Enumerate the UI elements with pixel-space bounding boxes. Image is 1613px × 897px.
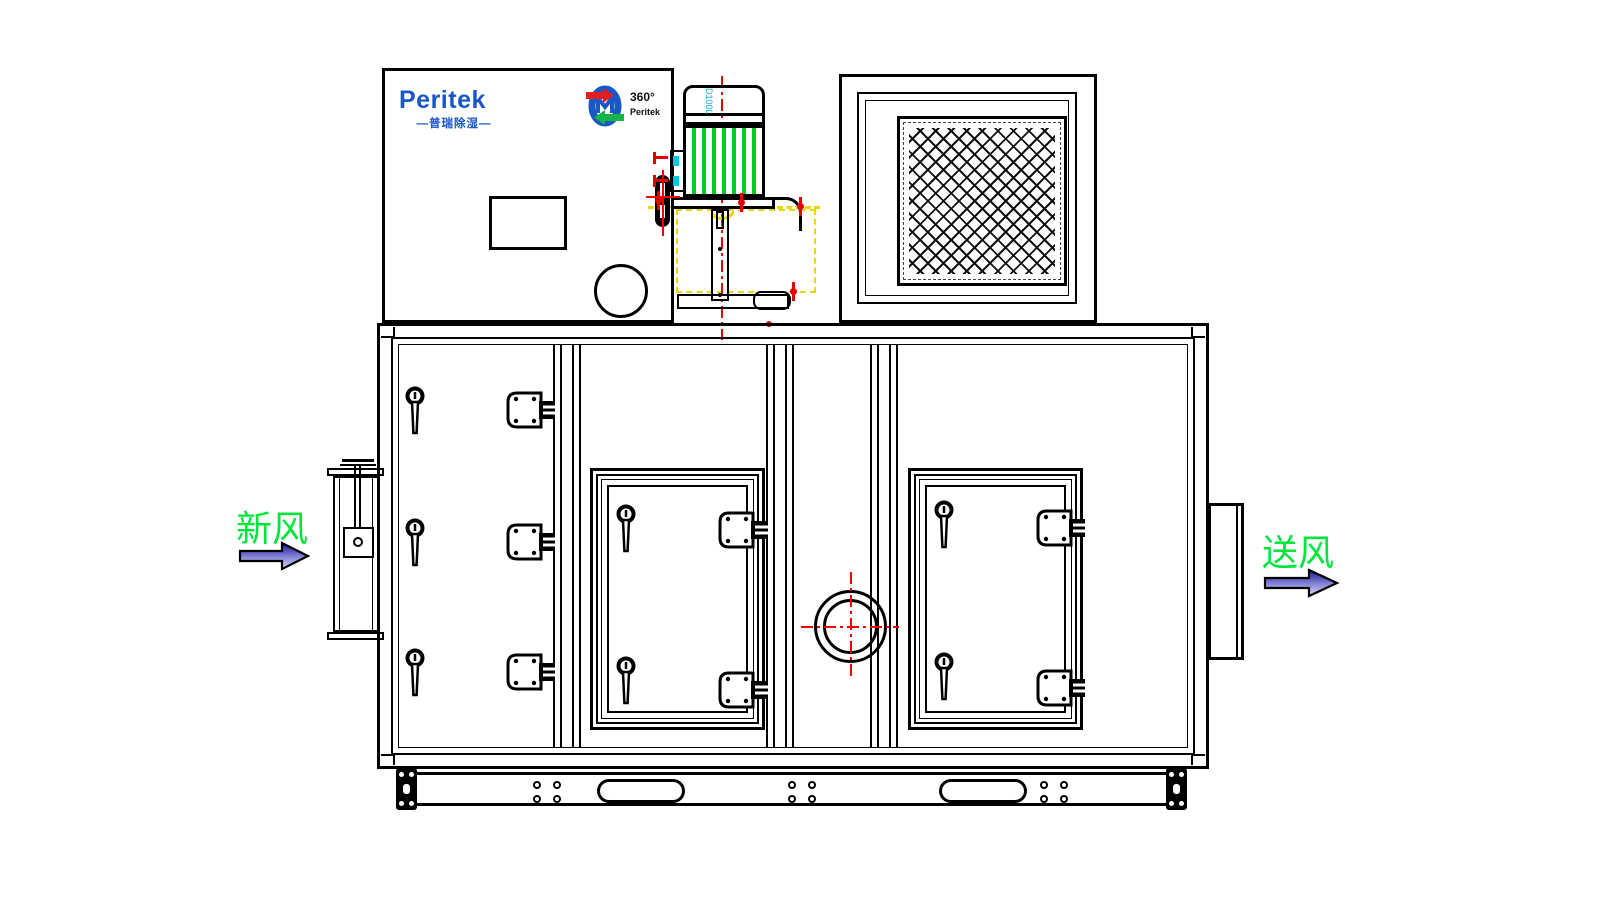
door-latch-icon [715, 510, 769, 550]
motor-elbow [774, 197, 802, 231]
actuator-shaft [353, 537, 363, 547]
brand-logo-text: Peritek [399, 88, 509, 113]
motor-model-label: D100L [704, 88, 713, 115]
panel-mullion [870, 345, 898, 748]
door-handle-icon [405, 386, 425, 436]
red-bolt-marker [797, 203, 804, 210]
door-handle-icon [405, 518, 425, 568]
bolt-hole [533, 781, 541, 789]
filter-mesh-grille [909, 128, 1055, 274]
red-bolt-marker [738, 199, 745, 206]
panel-mullion [553, 345, 581, 748]
rotor-degrees-label: 360° [630, 90, 655, 104]
brand-logo: Peritek —普瑞除湿— [399, 88, 509, 131]
control-round-port [594, 264, 648, 318]
port-centerline-h [801, 626, 899, 628]
damper-handle-bar [342, 459, 374, 462]
control-display-window [489, 196, 567, 250]
outlet-arrow-icon [1263, 562, 1341, 604]
rotor-logo-icon: 360° Peritek [584, 84, 666, 128]
damper-flange-top [327, 468, 384, 476]
base-slot [939, 779, 1027, 803]
bolt-hole [788, 795, 796, 803]
motor-shaft [716, 211, 724, 229]
motor-fins [683, 125, 765, 197]
bolt-hole [1060, 781, 1068, 789]
corner-notch [1191, 754, 1205, 765]
bolt-hole [1040, 795, 1048, 803]
door-latch-icon [1033, 508, 1087, 548]
door-handle-icon [934, 652, 954, 702]
brand-logo-subtitle: —普瑞除湿— [399, 115, 509, 131]
bolt-hole [1060, 795, 1068, 803]
door-latch-icon [503, 390, 557, 430]
rotor-brand-label: Peritek [630, 107, 661, 117]
bolt-hole [808, 795, 816, 803]
technical-drawing-canvas: Peritek —普瑞除湿— 360° Peritek D100L [0, 0, 1613, 897]
outlet-flange-inner-line [1236, 506, 1238, 657]
column-bolt [718, 247, 722, 251]
door-handle-icon [616, 656, 636, 706]
corner-notch [381, 327, 395, 338]
bolt-hole [533, 795, 541, 803]
corner-notch [1191, 327, 1205, 338]
door-latch-icon [503, 522, 557, 562]
door-latch-icon [1033, 668, 1087, 708]
panel-mullion [766, 345, 794, 748]
bracket-pad [673, 156, 679, 166]
damper-flange-bottom [327, 632, 384, 640]
motor-foot-bracket [753, 291, 791, 310]
red-pin-marker [656, 179, 668, 182]
bolt-hole [553, 795, 561, 803]
red-bolt-marker [655, 197, 662, 204]
door-handle-icon [616, 504, 636, 554]
door-handle-icon [934, 500, 954, 550]
door-latch-icon [503, 652, 557, 692]
base-end-bracket [1166, 768, 1187, 810]
door-latch-icon [715, 670, 769, 710]
pin-crossline [646, 196, 680, 198]
outlet-flange [1208, 503, 1244, 660]
bolt-hole [553, 781, 561, 789]
motor-cap [683, 85, 765, 125]
base-slot [597, 779, 685, 803]
bolt-hole [1040, 781, 1048, 789]
inlet-arrow-icon [238, 536, 312, 576]
corner-notch [381, 754, 395, 765]
door-handle-icon [405, 648, 425, 698]
base-end-bracket [396, 768, 417, 810]
bolt-hole [808, 781, 816, 789]
red-pin-marker [656, 156, 668, 159]
bracket-pad [673, 176, 679, 186]
red-bolt-marker [790, 288, 797, 295]
bolt-hole [788, 781, 796, 789]
